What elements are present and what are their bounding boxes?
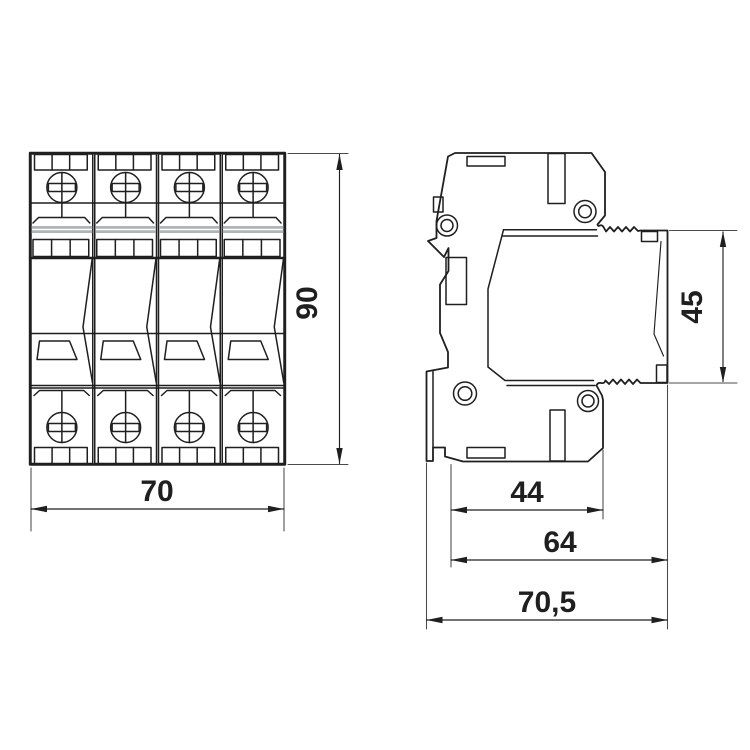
dim-70-5-arrow-left <box>427 617 443 623</box>
module-side-curve <box>211 259 221 383</box>
module-indicator-window <box>37 341 77 360</box>
module-label-window-row <box>33 240 89 257</box>
dim-width-70: 70 <box>31 468 284 531</box>
plug-module <box>642 232 668 383</box>
module-bottom-vents <box>35 448 88 465</box>
front-module-4 <box>221 154 285 464</box>
dim-70-arrow-right <box>268 506 284 512</box>
dim-90-arrow-top <box>336 154 342 170</box>
dim-44-arrow-left <box>451 507 467 513</box>
dim-64-label: 64 <box>543 526 577 559</box>
dim-90-arrow-bottom <box>336 448 342 464</box>
dim-45-arrow-bottom <box>720 367 726 383</box>
rivet-bottom-left <box>454 382 477 405</box>
top-vertical-slot <box>548 154 565 204</box>
bottom-horizontal-slot <box>467 448 505 459</box>
module-bottom-seam <box>94 386 158 389</box>
module-bottom-vents <box>98 448 151 465</box>
module-top-vents <box>162 155 215 171</box>
module-side-curve <box>147 259 157 383</box>
module-indicator-window <box>228 341 268 360</box>
module-top-ledge <box>33 218 90 224</box>
dim-depth-44: 44 <box>451 450 603 567</box>
module-top-vents <box>35 155 88 171</box>
front-module-3 <box>158 154 222 464</box>
module-top-vents <box>98 155 151 171</box>
dim-70-label: 70 <box>140 475 173 508</box>
rivet-bottom-right <box>578 391 599 412</box>
module-gap-shading <box>159 226 220 233</box>
module-indicator-window <box>101 341 141 360</box>
module-bottom-screw <box>174 391 204 443</box>
dim-44-arrow-right <box>587 507 603 513</box>
dimension-drawing: 70 90 <box>0 0 750 750</box>
front-module-2 <box>94 154 158 464</box>
module-indicator-window <box>165 341 205 360</box>
module-top-ledge <box>161 218 218 224</box>
side-view: 45 44 64 70,5 <box>427 153 738 629</box>
bottom-vertical-slot <box>550 410 565 461</box>
dim-64-arrow-left <box>451 557 467 563</box>
plug-molding-line <box>654 242 664 357</box>
module-top-ledge <box>224 218 281 224</box>
module-label-window-row <box>97 240 153 257</box>
module-gap-shading <box>32 226 93 233</box>
front-module-1 <box>30 154 94 464</box>
dim-90-label: 90 <box>291 286 324 319</box>
dim-44-label: 44 <box>510 476 544 509</box>
module-top-ledge <box>97 218 154 224</box>
module-top-screw <box>238 173 268 218</box>
rivet-top-left <box>437 215 458 236</box>
dim-70-5-arrow-right <box>652 617 668 623</box>
module-bottom-screw <box>238 391 268 443</box>
module-top-vents <box>226 155 279 171</box>
dim-45-arrow-top <box>720 232 726 248</box>
top-horizontal-slot <box>467 157 505 167</box>
dim-module-height-45: 45 <box>670 231 738 384</box>
module-side-curve <box>274 259 284 383</box>
front-body-outline <box>30 153 285 465</box>
module-bottom-vents <box>226 448 279 465</box>
module-bottom-seam <box>221 386 285 389</box>
module-label-window-row <box>161 240 217 257</box>
drawing-canvas: 70 90 <box>0 0 750 750</box>
module-gap-shading <box>223 226 284 233</box>
dim-height-90: 90 <box>288 154 348 465</box>
module-bottom-screw <box>47 391 77 443</box>
dim-70-arrow-left <box>31 506 47 512</box>
plug-bottom-latch <box>657 365 668 383</box>
module-bottom-seam <box>30 386 94 389</box>
module-top-screw <box>47 173 77 218</box>
rivet-top-right <box>574 201 596 223</box>
module-bottom-vents <box>162 448 215 465</box>
module-top-screw <box>111 173 141 218</box>
module-top-screw <box>174 173 204 218</box>
module-side-curve <box>83 259 93 383</box>
side-seam-lines <box>488 230 598 386</box>
module-gap-shading <box>95 226 156 233</box>
plug-top-latch <box>642 232 658 242</box>
front-modules <box>30 154 285 464</box>
module-bottom-screw <box>111 391 141 443</box>
front-view: 70 90 <box>30 153 348 531</box>
side-housing-outline <box>427 153 668 462</box>
module-bottom-seam <box>158 386 222 389</box>
dim-64-arrow-right <box>652 557 668 563</box>
module-label-window-row <box>224 240 280 257</box>
dim-45-label: 45 <box>676 290 709 323</box>
dim-70-5-label: 70,5 <box>518 586 576 619</box>
